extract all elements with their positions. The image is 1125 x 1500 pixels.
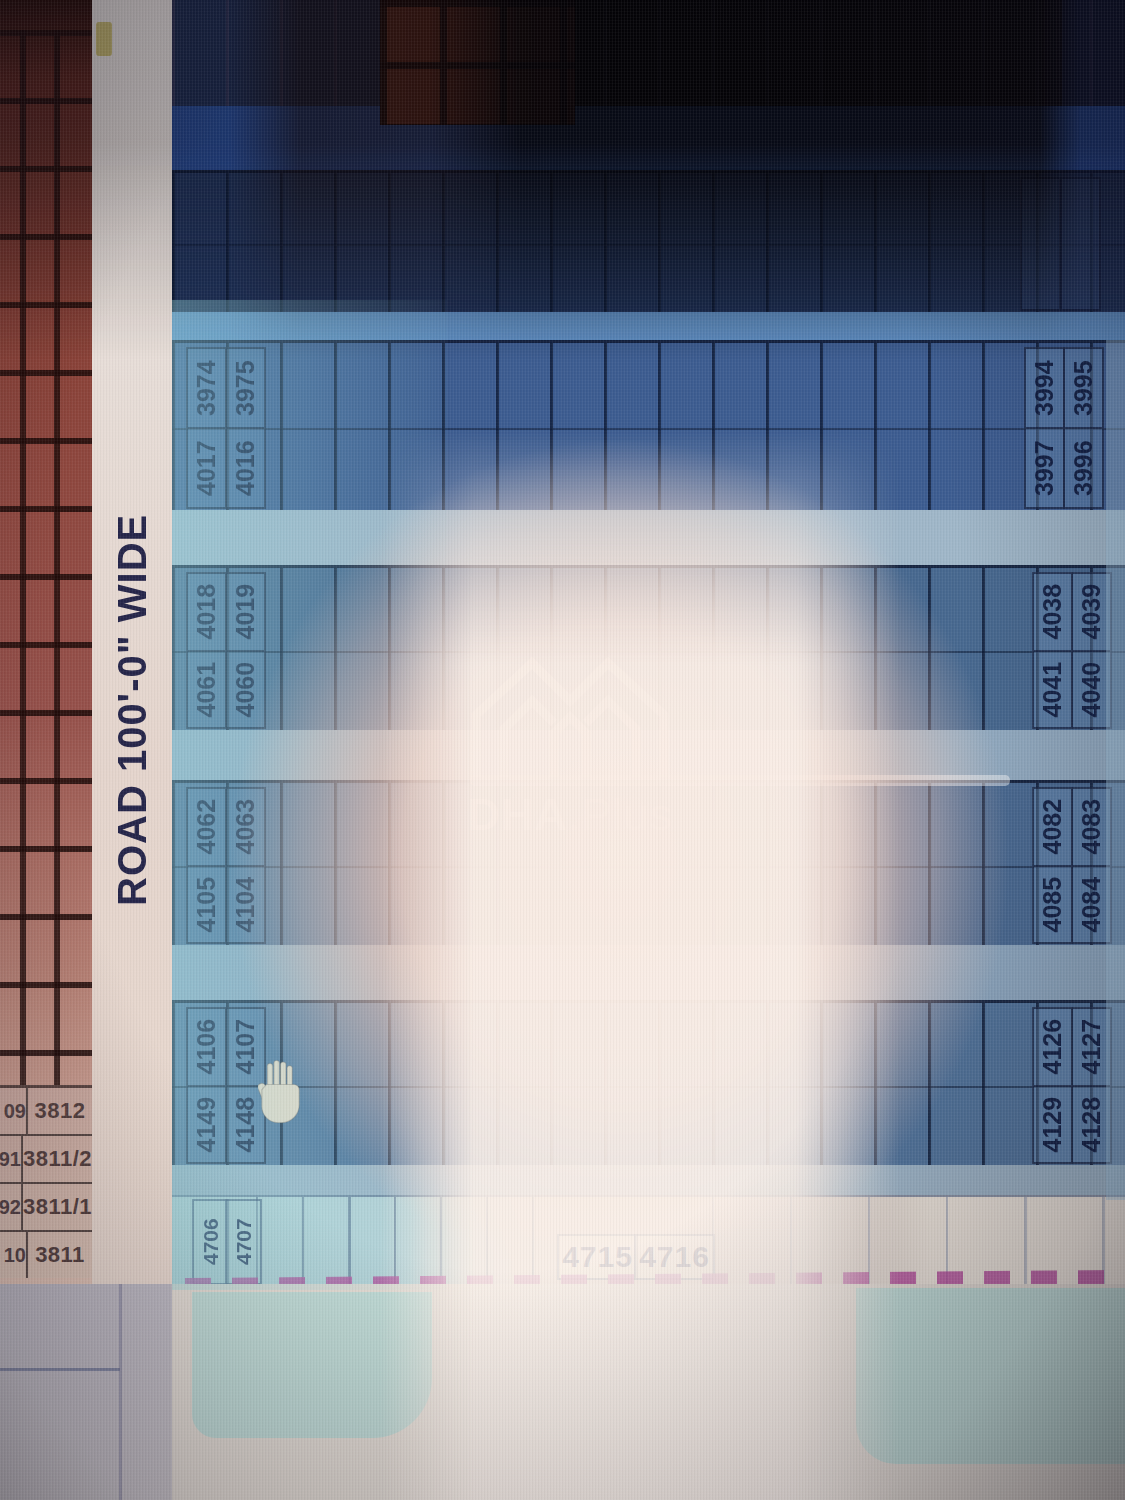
plot-label: 4126 4129 <box>1032 1007 1073 1164</box>
plot-number: 4062 <box>188 789 225 865</box>
plot-number: 4149 <box>188 1087 225 1163</box>
plot-label: 4019 4060 <box>225 572 266 729</box>
plot-number: 4106 <box>188 1009 225 1085</box>
table-row: 92 3811/1 <box>0 1184 92 1232</box>
plot-number: 3975 <box>227 349 264 427</box>
plot-row-0[interactable] <box>172 170 1125 318</box>
plot-cells <box>172 783 1125 948</box>
plot-number: 3974 <box>188 349 225 427</box>
plot-number: 3997 <box>1026 429 1063 507</box>
plot-label: 4715 <box>557 1234 638 1280</box>
plot-label: 4106 4149 <box>186 1007 227 1164</box>
plot-row-bottom[interactable]: 4706 4707 4715 4716 <box>172 1195 1125 1285</box>
plot-cells <box>256 1197 556 1285</box>
plot-number: 4017 <box>188 429 225 507</box>
plot-number: 4018 <box>188 574 225 650</box>
plot-number: 4060 <box>227 652 264 728</box>
hand-cursor <box>258 1056 306 1128</box>
plot-number-fragment: 09 <box>0 1088 28 1134</box>
plot-label: 4082 4085 <box>1032 787 1073 944</box>
plot-number: 4105 <box>188 867 225 943</box>
plot-label <box>1020 177 1061 311</box>
plot-number: 3994 <box>1026 349 1063 427</box>
road-width-label: ROAD 100'-0" WIDE <box>92 430 172 990</box>
plot-label: 4707 <box>225 1199 262 1285</box>
plot-label: 4127 4128 <box>1071 1007 1112 1164</box>
plot-number: 3996 <box>1065 429 1102 507</box>
plot-number: 4019 <box>227 574 264 650</box>
table-row: 10 3811 <box>0 1232 92 1278</box>
plot-label: 3975 4016 <box>225 347 266 509</box>
plot-label: 3995 3996 <box>1063 347 1104 509</box>
plot-number: 4085 <box>1034 867 1071 943</box>
plot-label: 4716 <box>634 1234 715 1280</box>
plot-row-2[interactable]: 4018 4061 4019 4060 4038 4041 4039 4040 <box>172 565 1125 736</box>
plot-number: 4041 <box>1034 652 1071 728</box>
open-area-left <box>0 1284 172 1500</box>
plot-row-3[interactable]: 4062 4105 4063 4104 4082 4085 4083 4084 <box>172 780 1125 951</box>
plot-number: 4126 <box>1034 1009 1071 1085</box>
plot-number: 3811 <box>28 1232 92 1278</box>
plot-number: 4082 <box>1034 789 1071 865</box>
plot-cells <box>172 173 1125 315</box>
plot-label: 3994 3997 <box>1024 347 1065 509</box>
plot-label: 4018 4061 <box>186 572 227 729</box>
table-row: 91 3811/2 <box>0 1136 92 1184</box>
plot-number: 3995 <box>1065 349 1102 427</box>
plot-label <box>1060 177 1101 311</box>
plot-row-4[interactable]: 4106 4149 4107 4148 4126 4129 4127 4128 <box>172 1000 1125 1171</box>
plot-row-top[interactable] <box>172 0 1125 109</box>
plot-label: 4083 4084 <box>1071 787 1112 944</box>
plot-number: 3811/2 <box>23 1136 92 1182</box>
plot-label: 4038 4041 <box>1032 572 1073 729</box>
plot-label: 4706 <box>192 1199 229 1285</box>
plot-cells <box>172 1003 1125 1168</box>
plot-number: 4715 <box>562 1240 633 1274</box>
plot-number: 4061 <box>188 652 225 728</box>
plot-number: 4063 <box>227 789 264 865</box>
plot-number: 4039 <box>1073 574 1110 650</box>
plot-cells <box>172 568 1125 733</box>
plot-number: 4016 <box>227 429 264 507</box>
plot-label: 4039 4040 <box>1071 572 1112 729</box>
plot-number: 3812 <box>28 1088 92 1134</box>
plot-label: 3974 4017 <box>186 347 227 509</box>
plot-number: 4716 <box>639 1240 710 1274</box>
plot-label: 4062 4105 <box>186 787 227 944</box>
plot-map-screenshot: 3974 4017 3975 4016 3994 3997 3995 3996 … <box>0 0 1125 1500</box>
plot-cells <box>712 1197 1125 1285</box>
plot-number: 4104 <box>227 867 264 943</box>
plot-number-fragment: 92 <box>0 1184 23 1230</box>
plot-number: 4706 <box>194 1201 227 1283</box>
plot-number: 4040 <box>1073 652 1110 728</box>
plot-cells <box>172 343 1125 513</box>
plot-number: 4083 <box>1073 789 1110 865</box>
plot-number-fragment: 10 <box>0 1232 28 1278</box>
plot-number: 4084 <box>1073 867 1110 943</box>
table-row: 09 3812 <box>0 1088 92 1136</box>
adjacent-sector-labels: 09 3812 91 3811/2 92 3811/1 10 3811 <box>0 1085 92 1278</box>
plot-row-1[interactable]: 3974 4017 3975 4016 3994 3997 3995 3996 <box>172 340 1125 516</box>
plot-number: 4707 <box>227 1201 260 1283</box>
plot-cells <box>172 0 1125 106</box>
plot-number: 4038 <box>1034 574 1071 650</box>
plot-number: 4129 <box>1034 1087 1071 1163</box>
plot-number: 3811/1 <box>23 1184 92 1230</box>
plot-number: 4128 <box>1073 1087 1110 1163</box>
plot-label: 4063 4104 <box>225 787 266 944</box>
plot-number: 4127 <box>1073 1009 1110 1085</box>
plot-number-fragment: 91 <box>0 1136 23 1182</box>
